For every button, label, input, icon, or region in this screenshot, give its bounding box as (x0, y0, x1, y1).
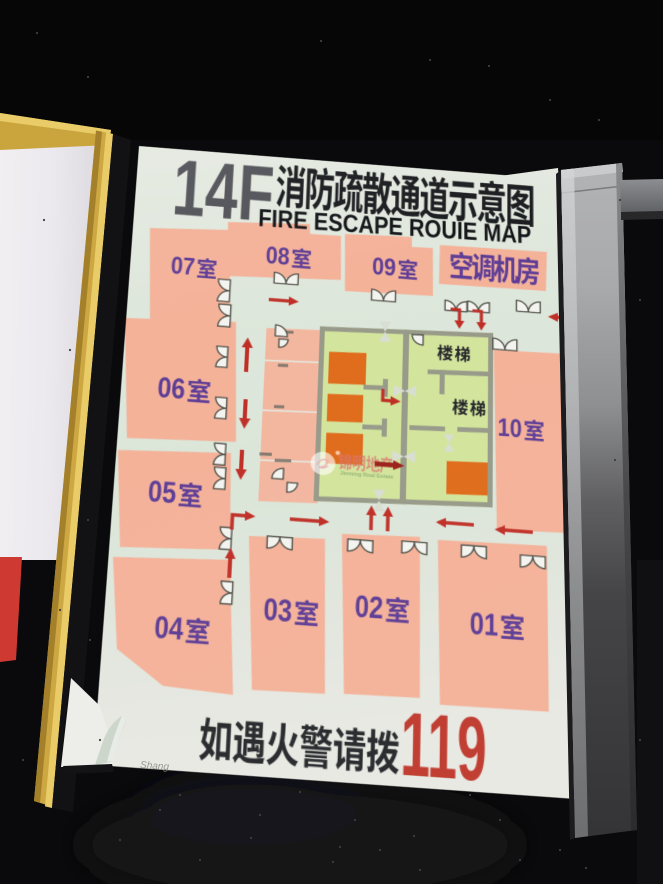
svg-text:Shang: Shang (140, 760, 170, 773)
